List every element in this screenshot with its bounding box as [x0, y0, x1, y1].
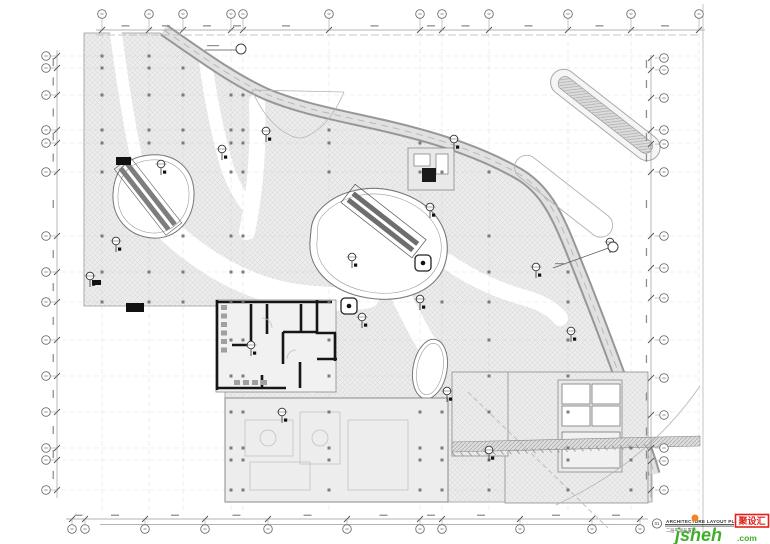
dim-number	[477, 515, 485, 516]
column-dot	[419, 411, 422, 414]
fixture	[261, 380, 267, 385]
dim-number	[53, 450, 54, 458]
column-dot	[242, 171, 245, 174]
column-dot	[182, 94, 185, 97]
dim-number	[111, 515, 119, 516]
column-dot	[101, 271, 104, 274]
dim-number	[203, 25, 211, 26]
column-dot	[182, 301, 185, 304]
column-dot	[567, 301, 570, 304]
column-dot	[101, 129, 104, 132]
toilet-block	[216, 300, 337, 392]
column-dot	[242, 489, 245, 492]
dim-number	[646, 248, 647, 256]
fixture	[221, 339, 227, 344]
column-dot	[148, 142, 151, 145]
survey-marker-flag	[253, 352, 256, 355]
column-dot	[182, 235, 185, 238]
logo-tld: .com	[737, 533, 757, 543]
fixture	[221, 331, 227, 336]
column-dot	[567, 339, 570, 342]
column-dot	[567, 271, 570, 274]
column-dot	[182, 67, 185, 70]
column-dot	[328, 447, 331, 450]
dim-number	[646, 60, 647, 68]
column-dot	[101, 94, 104, 97]
survey-marker-flag	[538, 274, 541, 277]
atrium-left	[113, 155, 194, 238]
logo-name: jsheh	[673, 525, 722, 544]
column-dot	[230, 459, 233, 462]
dim-number	[53, 426, 54, 434]
dim-number	[661, 25, 669, 26]
column-dot	[230, 375, 233, 378]
dim-number	[53, 471, 54, 479]
column-dot	[101, 235, 104, 238]
kiosk	[341, 298, 357, 314]
dim-number	[53, 317, 54, 325]
dim-number	[646, 200, 647, 208]
column-dot	[148, 129, 151, 132]
column-dot	[567, 411, 570, 414]
dim-number	[75, 515, 83, 516]
equipment-box	[92, 280, 101, 285]
survey-marker-flag	[268, 138, 271, 141]
column-dot	[419, 489, 422, 492]
survey-marker-flag	[354, 264, 357, 267]
dim-number	[646, 80, 647, 88]
survey-marker-flag	[364, 324, 367, 327]
column-dot	[230, 171, 233, 174]
column-dot	[488, 301, 491, 304]
dim-number	[646, 279, 647, 287]
column-dot	[441, 171, 444, 174]
dim-number	[525, 25, 533, 26]
column-dot	[230, 129, 233, 132]
column-dot	[148, 94, 151, 97]
equipment-box	[116, 157, 131, 165]
column-dot	[441, 447, 444, 450]
column-dot	[101, 301, 104, 304]
fixture	[221, 348, 227, 353]
column-dot	[567, 459, 570, 462]
fixture	[221, 322, 227, 327]
dim-number	[53, 154, 54, 162]
dim-number	[612, 515, 620, 516]
dim-number	[53, 390, 54, 398]
column-dot	[230, 447, 233, 450]
column-dot	[488, 271, 491, 274]
survey-marker-flag	[449, 398, 452, 401]
dim-number	[304, 515, 312, 516]
column-dot	[419, 447, 422, 450]
column-dot	[567, 447, 570, 450]
dim-number	[646, 315, 647, 323]
dim-number	[233, 25, 241, 26]
dim-number	[646, 428, 647, 436]
column-dot	[242, 142, 245, 145]
column-dot	[328, 129, 331, 132]
column-dot	[230, 271, 233, 274]
column-dot	[230, 142, 233, 145]
column-dot	[488, 235, 491, 238]
column-dot	[148, 67, 151, 70]
dim-number	[53, 354, 54, 362]
dim-number	[53, 109, 54, 117]
column-dot	[230, 301, 233, 304]
dim-number	[53, 78, 54, 86]
column-dot	[148, 301, 151, 304]
fixture	[221, 305, 227, 310]
survey-marker-flag	[573, 338, 576, 341]
column-dot	[328, 375, 331, 378]
column-dot	[148, 55, 151, 58]
column-dot	[242, 235, 245, 238]
column-dot	[101, 142, 104, 145]
column-dot	[101, 171, 104, 174]
dim-number	[162, 25, 170, 26]
column-dot	[328, 489, 331, 492]
dim-number	[646, 393, 647, 401]
column-dot	[488, 411, 491, 414]
callout-text	[555, 263, 567, 264]
column-dot	[441, 411, 444, 414]
sheet-title: ARCHITECTURE LAYOUT PLAN	[666, 519, 742, 524]
drawing-sheet: 01 ARCHITECTURE LAYOUT PLAN 二层平面布置图 jshe…	[0, 0, 770, 544]
column-dot	[419, 142, 422, 145]
logo-dot-icon	[692, 515, 699, 522]
column-dot	[567, 375, 570, 378]
logo-badge-text: 聚设汇	[737, 515, 765, 526]
tower-bottom-center	[225, 398, 448, 502]
fixture	[252, 380, 258, 385]
sheet-number: 01	[655, 521, 660, 526]
dim-number	[233, 515, 241, 516]
callout-circle	[608, 242, 618, 252]
column-dot	[230, 339, 233, 342]
column-dot	[182, 129, 185, 132]
survey-marker-flag	[422, 306, 425, 309]
kiosk	[415, 255, 431, 271]
column-dot	[328, 142, 331, 145]
dim-number	[122, 25, 130, 26]
dim-number	[53, 200, 54, 208]
column-dot	[242, 447, 245, 450]
dim-number	[53, 133, 54, 141]
column-dot	[630, 459, 633, 462]
dim-number	[53, 283, 54, 291]
equipment-box	[126, 303, 144, 312]
column-dot	[630, 489, 633, 492]
kiosk-dot	[347, 304, 352, 309]
column-dot	[230, 235, 233, 238]
column-dot	[242, 94, 245, 97]
column-dot	[101, 67, 104, 70]
dim-number	[646, 110, 647, 118]
survey-marker-flag	[491, 457, 494, 460]
column-dot	[328, 171, 331, 174]
dim-number	[371, 25, 379, 26]
column-dot	[328, 301, 331, 304]
column-dot	[182, 142, 185, 145]
column-dot	[182, 271, 185, 274]
dim-number	[380, 515, 388, 516]
column-dot	[242, 129, 245, 132]
dim-number	[596, 25, 604, 26]
dim-number	[282, 25, 290, 26]
dim-number	[646, 154, 647, 162]
column-dot	[488, 171, 491, 174]
column-dot	[488, 339, 491, 342]
core-top	[408, 148, 454, 190]
survey-marker-flag	[284, 419, 287, 422]
survey-marker-flag	[432, 214, 435, 217]
dim-number	[552, 515, 560, 516]
column-dot	[230, 94, 233, 97]
column-dot	[567, 489, 570, 492]
column-dot	[230, 489, 233, 492]
column-dot	[230, 411, 233, 414]
column-dot	[441, 489, 444, 492]
survey-marker-flag	[118, 248, 121, 251]
survey-marker-flag	[224, 156, 227, 159]
callout	[205, 44, 246, 54]
column-dot	[242, 301, 245, 304]
dim-number	[53, 58, 54, 66]
column-dot	[242, 411, 245, 414]
column-dot	[328, 411, 331, 414]
column-dot	[419, 171, 422, 174]
dim-number	[462, 25, 470, 26]
dim-number	[171, 515, 179, 516]
column-dot	[441, 459, 444, 462]
callout-circle	[236, 44, 246, 54]
column-dot	[328, 339, 331, 342]
column-dot	[242, 339, 245, 342]
column-dot	[488, 375, 491, 378]
callout-text	[207, 45, 219, 46]
dim-number	[427, 515, 435, 516]
dim-number	[646, 355, 647, 363]
dim-number	[646, 133, 647, 141]
column-dot	[441, 301, 444, 304]
column-dot	[242, 375, 245, 378]
dim-number	[646, 451, 647, 459]
kiosk-dot	[421, 261, 426, 266]
column-dot	[328, 459, 331, 462]
column-dot	[488, 489, 491, 492]
dim-number	[646, 472, 647, 480]
column-dot	[419, 459, 422, 462]
column-dot	[242, 271, 245, 274]
fixture	[234, 380, 240, 385]
dim-number	[53, 250, 54, 258]
floorplan-drawing: 01 ARCHITECTURE LAYOUT PLAN 二层平面布置图 jshe…	[0, 0, 770, 544]
column-dot	[148, 271, 151, 274]
column-dot	[101, 55, 104, 58]
fixture	[243, 380, 249, 385]
column-dot	[242, 459, 245, 462]
survey-marker-flag	[163, 171, 166, 174]
dim-number	[427, 25, 435, 26]
survey-marker-flag	[456, 146, 459, 149]
column-dot	[630, 447, 633, 450]
fixture	[221, 314, 227, 319]
